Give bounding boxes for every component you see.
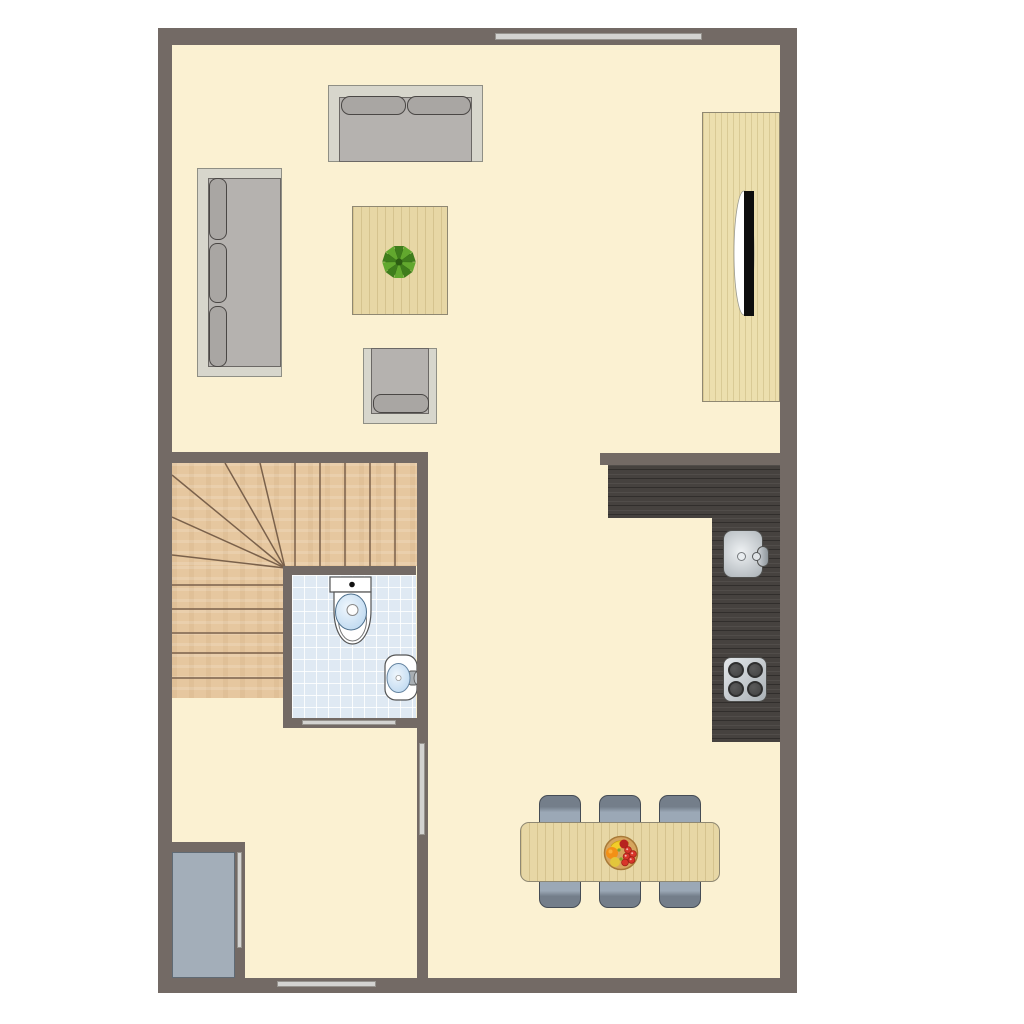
interior-wall-kitchen (600, 453, 780, 465)
sink-drain (737, 552, 746, 561)
bathroom-door[interactable] (302, 720, 396, 725)
burner-2 (747, 662, 763, 678)
bathroom-wall-left (283, 566, 292, 728)
back-cushion (407, 96, 471, 115)
potted-plant[interactable] (380, 243, 418, 281)
burner-3 (728, 681, 744, 697)
hallway-door[interactable] (419, 743, 425, 835)
back-cushion (209, 178, 227, 240)
back-cushion (209, 243, 227, 303)
burner-1 (728, 662, 744, 678)
flush-button (349, 582, 355, 588)
fruit-bowl[interactable] (601, 833, 641, 873)
television[interactable] (728, 186, 758, 320)
closet-door[interactable] (237, 852, 242, 948)
armchair-cushion (373, 394, 429, 413)
wall-bottom (158, 978, 797, 993)
back-cushion (341, 96, 406, 115)
back-cushion (209, 306, 227, 367)
storage-closet[interactable] (172, 852, 235, 978)
burner-4 (747, 681, 763, 697)
toilet[interactable] (325, 572, 380, 652)
interior-wall-stairs (172, 452, 428, 463)
cooktop[interactable] (723, 657, 767, 702)
interior-wall-hall (417, 452, 428, 978)
closet-wall-top (158, 842, 245, 852)
kitchen-faucet-spout (752, 552, 761, 561)
bathroom-wall-top (283, 566, 416, 575)
entrance-door[interactable] (277, 981, 376, 987)
pear (610, 857, 620, 867)
window-top[interactable] (495, 33, 702, 40)
wall-right (780, 28, 797, 993)
kitchen-counter-top[interactable] (608, 465, 780, 518)
floor-plan (0, 0, 1024, 1024)
hand-basin[interactable] (381, 653, 421, 703)
tv-panel (744, 191, 754, 316)
